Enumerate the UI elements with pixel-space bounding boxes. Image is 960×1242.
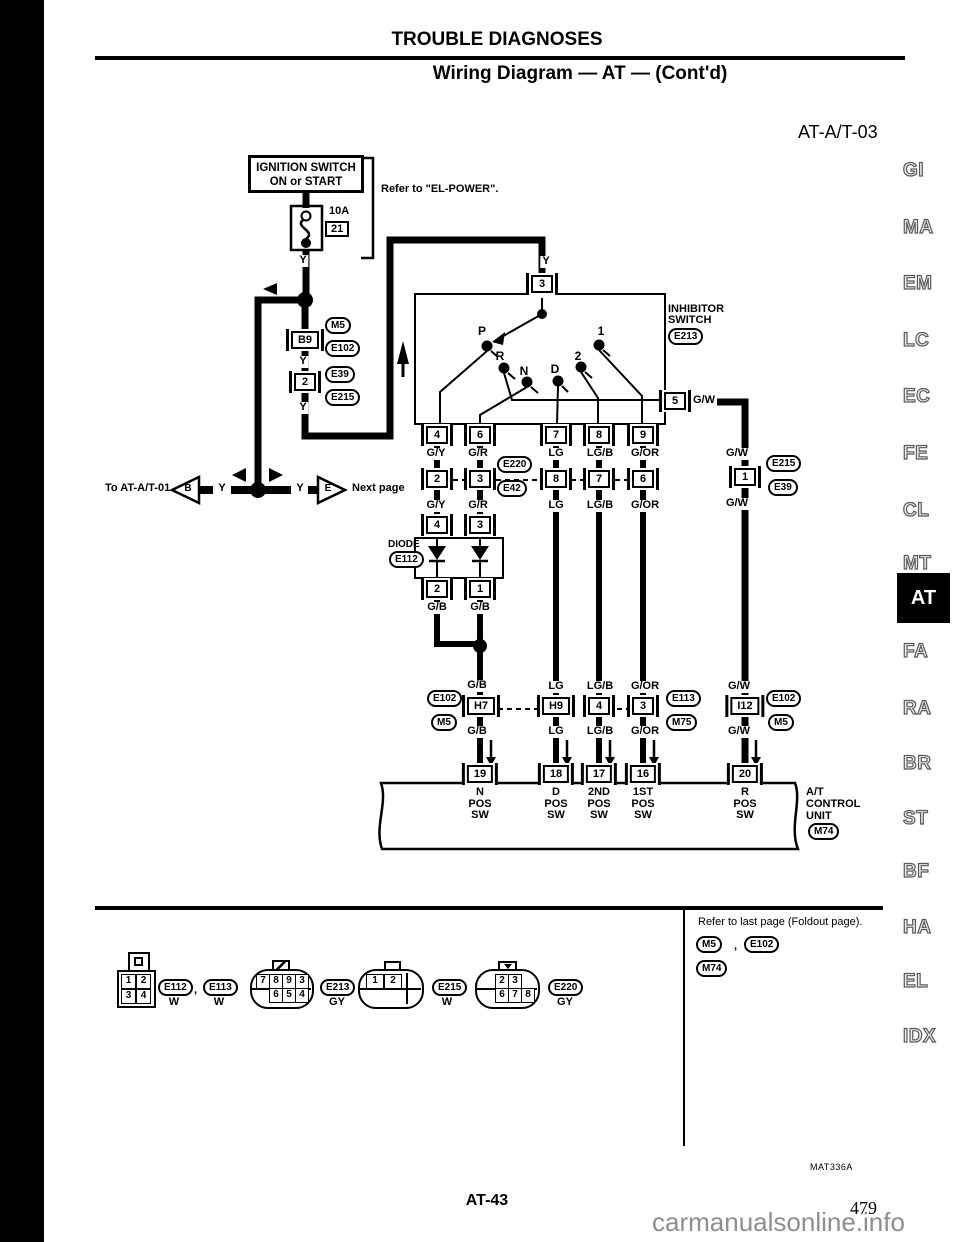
wire-label-lgb: LG/B [585, 726, 615, 738]
harness-connector-3: 3 [627, 695, 659, 717]
pin: 6 [269, 988, 283, 1003]
joint-connector-2: 2 [421, 468, 453, 490]
wire-label-lg: LG [546, 500, 565, 512]
ref-oval-e39: E39 [325, 366, 355, 383]
ref-oval-e113: E113 [203, 979, 238, 996]
pin: 5 [282, 988, 296, 1003]
fuse-icon [291, 206, 322, 250]
wire-label-lg: LG [546, 681, 565, 693]
ref-oval-e42: E42 [497, 480, 527, 497]
pin: 4 [136, 989, 151, 1004]
connector-divider [406, 973, 408, 1004]
ignition-switch-box: IGNITION SWITCH ON or START [248, 155, 364, 193]
wire-label-y: Y [297, 356, 308, 368]
link-prev-text: To AT-A/T-01 [103, 483, 172, 495]
ref-oval-e113: E113 [666, 690, 701, 707]
wire-label-y: Y [216, 483, 227, 495]
diode-terminal-3: 3 [464, 514, 496, 536]
terminal-number: 18 [543, 765, 569, 783]
ref-oval-m75: M75 [666, 714, 697, 731]
harness-connector-h9: H9 [537, 695, 575, 717]
ref-oval-e112: E112 [389, 551, 424, 568]
tab-key-square [134, 957, 143, 966]
ref-oval-m74: M74 [696, 960, 727, 977]
wire-label-gb: G/B [468, 602, 492, 614]
ref-oval-e215: E215 [325, 389, 360, 406]
link-prev-triangle-id: B [182, 484, 193, 495]
cu-terminal-18: 18 [538, 763, 574, 785]
sw-line: 2ND [587, 787, 610, 799]
position-label-2: 2 [575, 349, 582, 363]
inhibitor-terminal-4: 4 [421, 424, 453, 446]
wire-label-gb: G/B [465, 726, 489, 738]
position-label-r: R [496, 349, 505, 363]
pin: 3 [121, 989, 136, 1004]
connector-id: 3 [632, 697, 654, 715]
pin: 7 [256, 974, 270, 989]
wire-label-y: Y [297, 402, 308, 414]
wire-label-gor: G/OR [629, 448, 661, 460]
terminal-number: 7 [545, 426, 567, 444]
footer-code: MAT336A [810, 1162, 853, 1172]
joint-connector-6: 6 [627, 468, 659, 490]
cu-terminal-19: 19 [462, 763, 498, 785]
sw-label-d-pos: D POS SW [544, 787, 567, 822]
ref-oval-m74: M74 [808, 823, 839, 840]
sw-line: D [544, 787, 567, 799]
control-unit-name-line1: A/T [806, 786, 824, 798]
connector-color: W [167, 997, 181, 1009]
pin: 1 [121, 974, 136, 989]
ref-oval-e102: E102 [427, 690, 462, 707]
sw-line: 1ST [631, 787, 654, 799]
pin: 2 [136, 974, 151, 989]
sw-line: SW [544, 810, 567, 822]
pin: 8 [521, 988, 535, 1003]
wire-label-gy: G/Y [425, 500, 448, 512]
connector-color: GY [555, 997, 575, 1009]
inhibitor-terminal-9: 9 [627, 424, 659, 446]
connector-number: 6 [632, 470, 654, 488]
connector-b9: B9 [286, 329, 324, 351]
wire-label-gr: G/R [466, 500, 490, 512]
connector-number: 7 [588, 470, 610, 488]
cu-terminal-17: 17 [581, 763, 617, 785]
diode-terminal-4: 4 [421, 514, 453, 536]
connector-id: H9 [542, 697, 570, 715]
connector-id: I12 [730, 697, 759, 715]
harness-connector-4: 4 [583, 695, 615, 717]
sw-line: SW [587, 810, 610, 822]
inhibitor-switch-internals [415, 294, 665, 424]
terminal-number: 3 [531, 275, 553, 293]
ignition-switch-line1: IGNITION SWITCH [251, 161, 361, 175]
ref-oval-e102: E102 [766, 690, 801, 707]
inhibitor-right-terminal: 5 [659, 390, 691, 412]
connector-number: 2 [426, 470, 448, 488]
el-power-note: Refer to "EL-POWER". [381, 183, 498, 195]
pin: 3 [295, 974, 309, 989]
inhibitor-terminal-7: 7 [540, 424, 572, 446]
terminal-number: 1 [469, 580, 491, 598]
ref-oval-m5: M5 [768, 714, 794, 731]
connector-color: W [212, 997, 226, 1009]
diode-label: DIODE [386, 540, 422, 551]
pin: 2 [384, 974, 402, 989]
wire-label-lgb: LG/B [585, 448, 615, 460]
foldout-note: Refer to last page (Foldout page). [698, 916, 862, 928]
pin: 8 [269, 974, 283, 989]
sw-line: SW [631, 810, 654, 822]
connector-color: W [440, 997, 454, 1009]
wire-label-lgb: LG/B [585, 500, 615, 512]
wire-label-y: Y [294, 483, 305, 495]
pin: 3 [508, 974, 522, 989]
watermark: carmanualsonline.info [652, 1207, 905, 1238]
gallery-connector-e213: 7 8 9 3 6 5 4 [250, 969, 314, 1009]
wire-label-gr: G/R [466, 448, 490, 460]
link-next-text: Next page [350, 483, 407, 495]
connector-2-id: 2 [294, 373, 316, 391]
wire-label-gw: G/W [724, 498, 750, 510]
gallery-connector-e220: 2 3 6 7 8 [475, 969, 540, 1009]
connector-id: 4 [588, 697, 610, 715]
inhibitor-terminal-6: 6 [464, 424, 496, 446]
diode-terminal-1: 1 [464, 578, 496, 600]
page-label: AT-43 [464, 1193, 510, 1210]
terminal-number: 9 [632, 426, 654, 444]
wire-label-gw: G/W [726, 681, 752, 693]
connector-id: H7 [467, 697, 495, 715]
pin: 6 [495, 988, 509, 1003]
terminal-number: 6 [469, 426, 491, 444]
ref-oval-e213: E213 [668, 328, 703, 345]
terminal-number: 20 [732, 765, 758, 783]
section-divider [95, 906, 883, 910]
connector-2: 2 [289, 371, 321, 393]
joint-connector-3: 3 [464, 468, 496, 490]
sw-label-n-pos: N POS SW [468, 787, 491, 822]
ref-oval-e215: E215 [766, 455, 801, 472]
pin: 2 [495, 974, 509, 989]
sw-label-1st-pos: 1ST POS SW [631, 787, 654, 822]
manual-page: TROUBLE DIAGNOSES Wiring Diagram — AT — … [0, 0, 960, 1242]
connector-face-tab [128, 952, 150, 972]
ref-oval-e220: E220 [548, 979, 583, 996]
terminal-number: 5 [664, 392, 686, 410]
harness-connector-i12: I12 [725, 695, 764, 717]
ref-oval-e39: E39 [768, 479, 798, 496]
terminal-number: 2 [426, 580, 448, 598]
position-label-d: D [551, 362, 560, 376]
connector-b9-id: B9 [291, 331, 319, 349]
sw-line: SW [733, 810, 756, 822]
control-unit-name-line2: CONTROL [806, 798, 860, 810]
diode-symbols [415, 538, 503, 578]
wire-label-lg: LG [546, 448, 565, 460]
ref-oval-e213: E213 [320, 979, 355, 996]
sw-label-r-pos: R POS SW [733, 787, 756, 822]
terminal-number: 3 [469, 516, 491, 534]
cu-terminal-20: 20 [727, 763, 763, 785]
connector-1: 1 [729, 466, 761, 488]
fuse-rating: 10A [327, 206, 351, 218]
inhibitor-name-line2: SWITCH [668, 314, 711, 326]
wire-label-gor: G/OR [629, 681, 661, 693]
harness-connector-h7: H7 [462, 695, 500, 717]
connector-color: GY [327, 997, 347, 1009]
cu-terminal-16: 16 [625, 763, 661, 785]
fuse-number: 21 [325, 221, 349, 237]
ignition-switch-line2: ON or START [251, 175, 361, 189]
terminal-number: 19 [467, 765, 493, 783]
terminal-number: 4 [426, 516, 448, 534]
ref-oval-e102: E102 [744, 936, 779, 953]
pin: 7 [508, 988, 522, 1003]
control-unit-name-line3: UNIT [806, 810, 832, 822]
cu-feed-arrows [486, 740, 761, 766]
connector-number: 1 [734, 468, 756, 486]
position-label-p: P [478, 324, 486, 338]
connector-number: 8 [545, 470, 567, 488]
wire-label-gor: G/OR [629, 500, 661, 512]
ref-oval-e112: E112 [158, 979, 193, 996]
terminal-number: 4 [426, 426, 448, 444]
comma: , [194, 984, 197, 996]
connector-number: 3 [469, 470, 491, 488]
terminal-number: 16 [630, 765, 656, 783]
wire-label-lgb: LG/B [585, 681, 615, 693]
wire-label-y: Y [540, 256, 551, 268]
wire-label-gb: G/B [465, 680, 489, 692]
sw-label-2nd-pos: 2ND POS SW [587, 787, 610, 822]
inhibitor-top-terminal: 3 [526, 273, 558, 295]
terminal-number: 8 [588, 426, 610, 444]
wire-label-gb: G/B [425, 602, 449, 614]
joint-connector-7: 7 [583, 468, 615, 490]
terminal-number: 17 [586, 765, 612, 783]
wire-label-gy: G/Y [425, 448, 448, 460]
sw-line: R [733, 787, 756, 799]
joint-connector-8: 8 [540, 468, 572, 490]
sw-line: SW [468, 810, 491, 822]
link-next-triangle-id: E [323, 484, 334, 495]
ref-oval-m5: M5 [431, 714, 457, 731]
position-label-n: N [520, 364, 529, 378]
ref-oval-m5: M5 [696, 936, 722, 953]
gallery-connector-e112-e113: 1 2 3 4 [117, 970, 156, 1008]
wire-label-y: Y [297, 255, 308, 267]
inhibitor-terminal-8: 8 [583, 424, 615, 446]
gallery-connector-e215: 1 2 [358, 969, 424, 1009]
ref-oval-m5: M5 [325, 317, 351, 334]
pin: 1 [366, 974, 384, 989]
wire-label-gw: G/W [724, 448, 750, 460]
wire-label-lg: LG [546, 726, 565, 738]
ref-oval-e102: E102 [325, 340, 360, 357]
wire-label-gw: G/W [691, 395, 717, 407]
diode-terminal-2: 2 [421, 578, 453, 600]
ref-oval-e220: E220 [497, 456, 532, 473]
footnote-separator [683, 906, 685, 1146]
pin: 4 [295, 988, 309, 1003]
wire-label-gw: G/W [726, 726, 752, 738]
pin: 9 [282, 974, 296, 989]
wire-label-gor: G/OR [629, 726, 661, 738]
sw-line: N [468, 787, 491, 799]
comma: , [734, 940, 737, 952]
position-label-1: 1 [598, 324, 605, 338]
ref-oval-e215: E215 [432, 979, 467, 996]
